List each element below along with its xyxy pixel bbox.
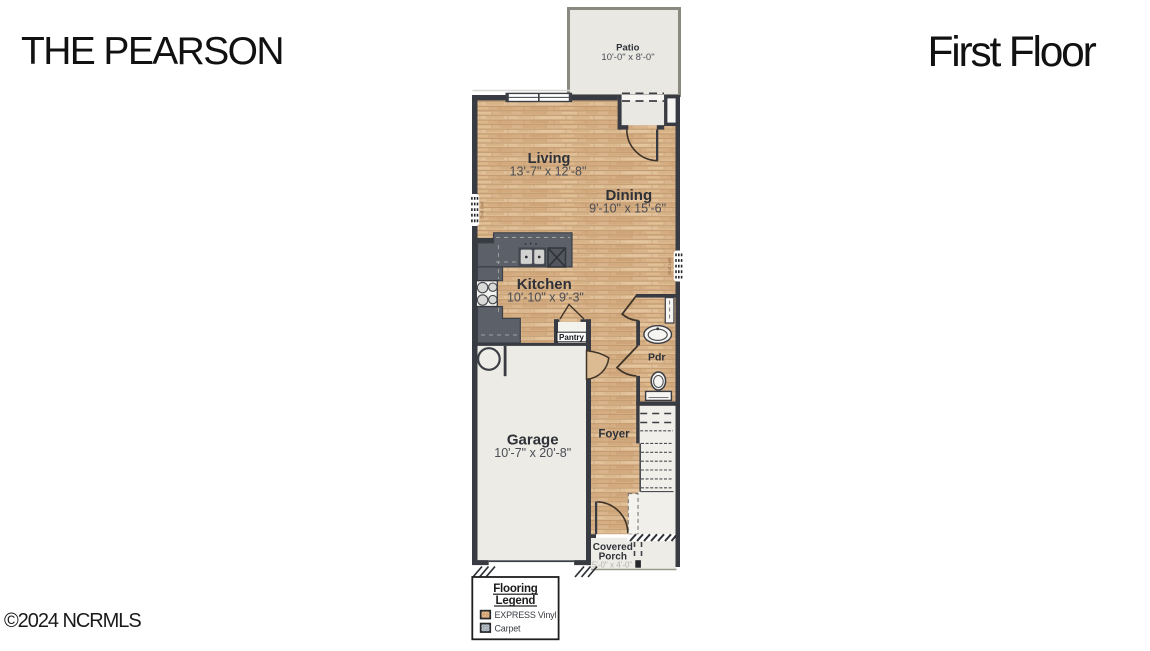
svg-text:Carpet: Carpet — [495, 623, 522, 633]
svg-text:Legend: Legend — [496, 595, 536, 607]
svg-text:10'-7" x 20'-8": 10'-7" x 20'-8" — [494, 446, 571, 460]
svg-text:13'-7" x 12'-8": 13'-7" x 12'-8" — [510, 165, 587, 179]
svg-text:EXPRESS Vinyl: EXPRESS Vinyl — [495, 610, 557, 620]
svg-text:First Floor: First Floor — [928, 29, 1097, 76]
svg-text:THE PEARSON: THE PEARSON — [21, 30, 283, 73]
svg-text:End Unit: End Unit — [480, 201, 485, 219]
svg-text:Pantry: Pantry — [559, 333, 584, 342]
svg-text:10'-0" x 8'-0": 10'-0" x 8'-0" — [601, 52, 654, 63]
svg-text:Foyer: Foyer — [598, 428, 630, 440]
svg-text:©2024 NCRMLS: ©2024 NCRMLS — [4, 610, 141, 632]
svg-text:Pdr: Pdr — [648, 352, 666, 364]
svg-text:9'-10" x 15'-6": 9'-10" x 15'-6" — [589, 201, 666, 215]
svg-text:End Unit: End Unit — [667, 257, 672, 275]
svg-text:10'-10" x 9'-3": 10'-10" x 9'-3" — [507, 291, 584, 305]
svg-text:5'-0" x 4'-0": 5'-0" x 4'-0" — [592, 561, 632, 570]
svg-text:Flooring: Flooring — [493, 583, 538, 595]
